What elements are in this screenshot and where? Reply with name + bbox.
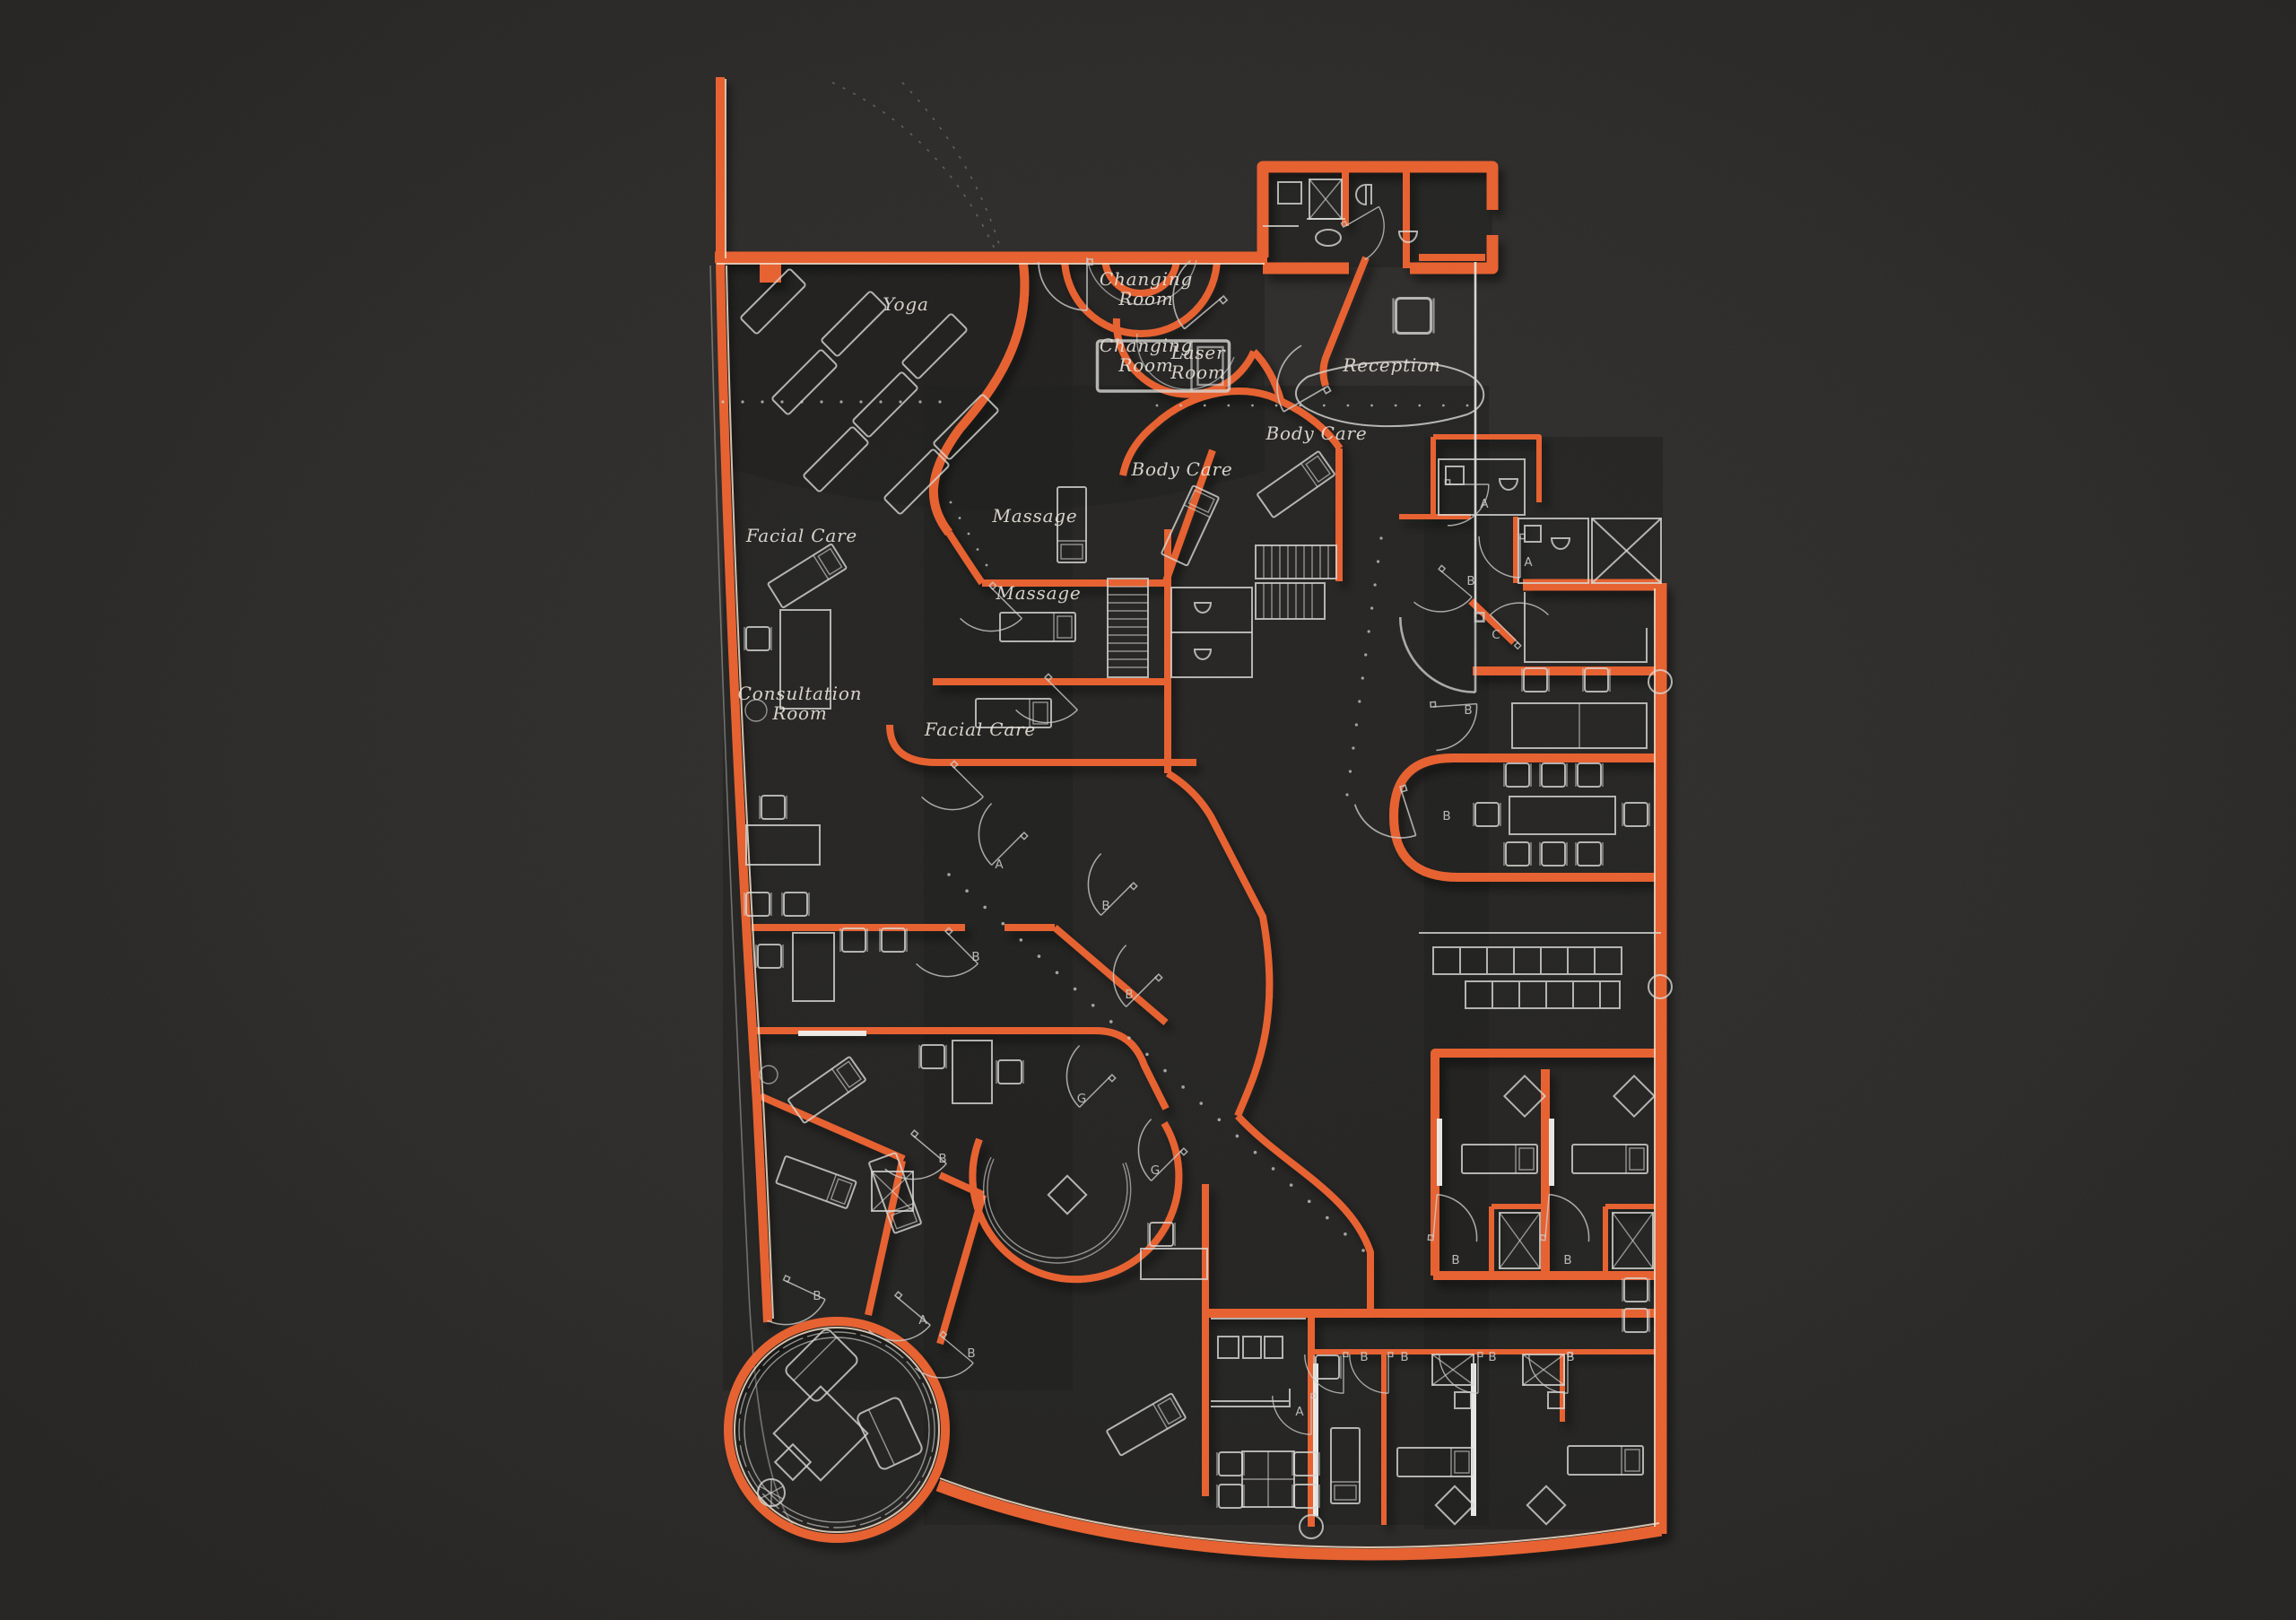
floor-plan-canvas: YogaChangingRoomChangingRoomLaserRoomRec…: [0, 0, 2296, 1620]
door-tag-g-11: G: [1151, 1163, 1160, 1178]
room-label-massage-8: Massage: [995, 582, 1081, 604]
room-label-yoga-0: Yoga: [883, 293, 928, 315]
door-tag-b-17: B: [967, 1346, 975, 1361]
door-tag-b-5: B: [1442, 809, 1450, 823]
door-tag-b-7: B: [1101, 899, 1109, 913]
room-label-body-care-5: Body Care: [1265, 422, 1367, 444]
door-tag-a-0: A: [1480, 497, 1489, 511]
door-tag-b-12: B: [938, 1152, 946, 1166]
door-tag-b-9: B: [1125, 988, 1133, 1002]
door-tag-b-20: B: [1488, 1350, 1496, 1364]
door-tag-a-16: A: [918, 1313, 927, 1328]
door-tag-b-13: B: [1451, 1253, 1459, 1267]
room-label-laser-room-3: LaserRoom: [1170, 342, 1226, 383]
room-label-facial-care-9: Facial Care: [745, 525, 857, 546]
door-tag-a-6: A: [995, 858, 1004, 872]
room-label-facial-care-11: Facial Care: [924, 719, 1036, 740]
door-tag-c-3: C: [1492, 628, 1500, 642]
room-label-body-care-6: Body Care: [1130, 458, 1232, 480]
door-tag-b-18: B: [1360, 1350, 1368, 1364]
door-tag-b-1: B: [1466, 574, 1474, 588]
room-label-reception-4: Reception: [1342, 354, 1440, 376]
door-tag-b-21: B: [1566, 1350, 1574, 1364]
room-label-massage-7: Massage: [991, 505, 1077, 527]
door-tag-b-15: B: [813, 1289, 821, 1303]
door-tag-b-4: B: [1464, 703, 1472, 718]
door-tag-g-10: G: [1077, 1092, 1086, 1106]
door-tag-a-22: A: [1295, 1405, 1304, 1419]
door-tag-b-8: B: [971, 950, 979, 964]
door-tag-b-19: B: [1400, 1350, 1408, 1364]
door-tag-b-14: B: [1563, 1253, 1571, 1267]
door-tag-a-2: A: [1524, 555, 1533, 570]
blueprint-viewport: YogaChangingRoomChangingRoomLaserRoomRec…: [0, 0, 2296, 1620]
